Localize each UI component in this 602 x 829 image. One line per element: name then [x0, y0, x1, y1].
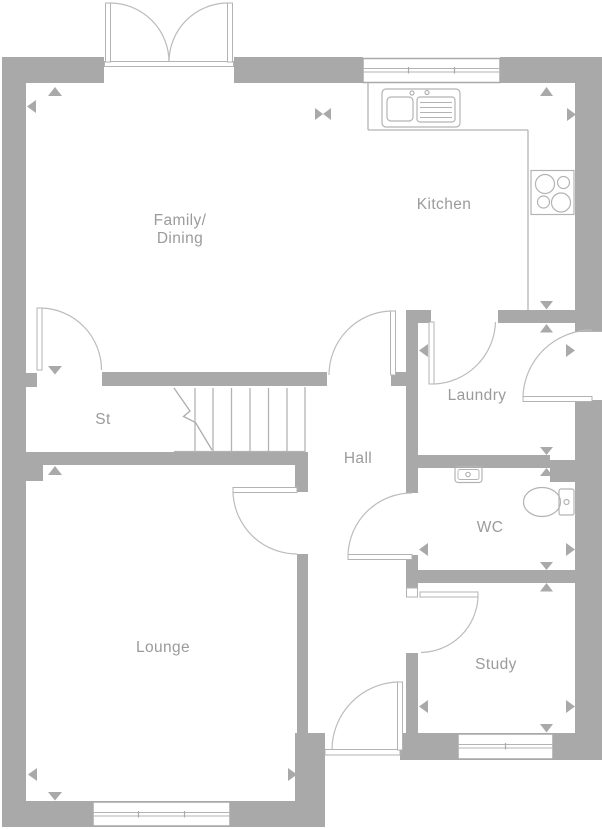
- wall-top-mid: [234, 57, 363, 83]
- marker-left-icon: [419, 700, 428, 713]
- marker-down-icon: [540, 301, 553, 310]
- marker-down-icon: [48, 366, 62, 375]
- marker-down-icon: [540, 724, 553, 733]
- floor-plan-drawing: [0, 0, 602, 829]
- wall-st-lounge: [26, 452, 308, 465]
- hob: [531, 171, 574, 215]
- family-dining-label-line2: Dining: [154, 230, 207, 248]
- lounge-window: [93, 802, 230, 826]
- room-label-hall: Hall: [344, 450, 372, 468]
- wall-wc-corner-block: [550, 460, 575, 482]
- kitchen-window: [363, 59, 500, 83]
- marker-up-icon: [540, 583, 553, 592]
- marker-up-icon: [48, 466, 62, 475]
- wall-laundry-wc: [418, 455, 550, 468]
- wall-st-stub: [26, 373, 37, 387]
- wall-corridor-step: [295, 733, 325, 827]
- room-label-laundry: Laundry: [448, 387, 507, 405]
- wall-left: [2, 57, 26, 827]
- laundry-door: [429, 322, 496, 384]
- room-label-kitchen: Kitchen: [417, 196, 472, 214]
- wall-kitchen-laundry-right: [498, 310, 575, 323]
- double-entrance-door: [105, 3, 234, 67]
- toilet: [524, 488, 575, 517]
- wall-hall-laundry: [406, 310, 418, 493]
- floor-plan: Family/ Dining Kitchen St Hall Laundry W…: [0, 0, 602, 829]
- marker-left-icon: [419, 344, 428, 357]
- marker-down-icon: [540, 447, 553, 455]
- marker-right-icon: [567, 108, 576, 121]
- family-dining-door: [329, 311, 396, 375]
- marker-down-icon: [540, 562, 553, 570]
- walls: [2, 57, 602, 827]
- room-label-study: Study: [475, 656, 517, 674]
- room-label-wc: WC: [477, 519, 504, 537]
- wall-kitchen-laundry-left: [406, 310, 431, 323]
- wall-wc-study: [418, 570, 575, 583]
- wall-study-left: [406, 653, 418, 733]
- marker-left-icon: [27, 100, 36, 113]
- st-door: [37, 308, 102, 370]
- room-label-store: St: [95, 411, 110, 429]
- wall-lounge-right: [297, 554, 308, 733]
- kitchen-sink: [382, 89, 460, 127]
- marker-up-icon: [48, 87, 62, 96]
- wall-right-lower: [575, 400, 602, 760]
- marker-up-icon: [540, 87, 553, 96]
- lounge-door: [233, 488, 297, 555]
- wash-basin: [455, 467, 482, 483]
- room-label-lounge: Lounge: [136, 639, 190, 657]
- marker-down-icon: [48, 792, 62, 801]
- wall-top-right: [500, 57, 575, 83]
- wall-right-upper: [575, 57, 602, 332]
- back-door: [325, 682, 403, 755]
- study-window: [458, 734, 553, 759]
- side-door: [523, 330, 602, 402]
- wall-st-step: [26, 465, 43, 481]
- room-label-family-dining: Family/ Dining: [154, 212, 207, 248]
- family-dining-label-line1: Family/: [154, 212, 207, 230]
- staircase: [174, 387, 305, 452]
- marker-left-icon: [28, 768, 37, 781]
- wall-family-hall: [102, 372, 327, 386]
- marker-left-icon: [419, 543, 428, 556]
- study-door: [407, 588, 479, 653]
- marker-right-icon: [315, 108, 323, 120]
- marker-left-icon: [323, 108, 331, 120]
- wc-door: [348, 493, 412, 560]
- marker-up-icon: [540, 324, 553, 333]
- marker-right-icon: [566, 344, 575, 357]
- marker-right-icon: [566, 543, 575, 556]
- marker-right-icon: [566, 700, 575, 713]
